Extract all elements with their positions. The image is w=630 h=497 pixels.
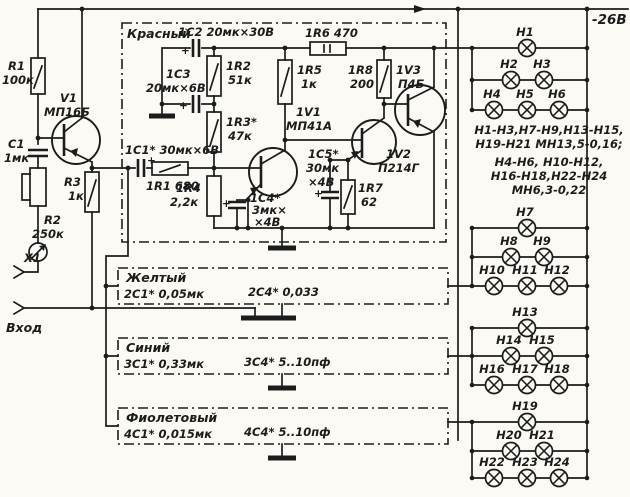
- violet-c4-label: 4C4* 5..10пф: [243, 425, 331, 439]
- lamp-label-Н8: Н8: [500, 234, 518, 248]
- connector-x1-name: X1: [23, 251, 41, 265]
- junction-dot: [585, 226, 590, 231]
- junction-dot: [585, 7, 590, 12]
- lamp-note-line5: МН6,3-0,22: [512, 183, 587, 197]
- junction-dot: [235, 226, 240, 231]
- lamp-label-Н2: Н2: [500, 57, 518, 71]
- polarity-plus: +: [314, 188, 323, 200]
- resistor-1r3-value: 47к: [227, 129, 253, 143]
- junction-dot: [585, 255, 590, 260]
- transistor-1v3-name: 1V3: [396, 63, 421, 77]
- capacitor-1c4: + 1C4* 3мк× ×4В: [222, 191, 287, 229]
- blue-c1-label: 3C1* 0,33мк: [124, 357, 205, 371]
- resistor-1r6-label: 1R6 470: [305, 26, 358, 40]
- transistor-v1-value: МП16Б: [44, 105, 90, 119]
- capacitor-1c3-value: 20мк×6В: [146, 81, 206, 95]
- input-label: Вход: [6, 320, 42, 335]
- potentiometer-r2-name: R2: [44, 213, 61, 227]
- resistor-1r4-value: 2,2к: [170, 195, 199, 209]
- violet-c1-label: 4C1* 0,015мк: [123, 427, 213, 441]
- lamp-note-line2: Н19-Н21 МН13,5-0,16;: [475, 137, 622, 151]
- yellow-c1-label: 2C1* 0,05мк: [124, 287, 205, 301]
- ground-symbol: [241, 308, 269, 318]
- junction-dot: [212, 102, 217, 107]
- junction-dot: [36, 136, 41, 141]
- lamp-label-Н18: Н18: [544, 362, 570, 376]
- junction-dot: [246, 198, 251, 203]
- junction-dot: [160, 102, 165, 107]
- junction-dot: [585, 78, 590, 83]
- lamp-label-Н3: Н3: [533, 57, 551, 71]
- ground-symbol: [268, 304, 296, 318]
- resistor-r3-value: 1к: [68, 189, 85, 203]
- capacitor-1c5-line2: 30мк: [306, 161, 340, 175]
- current-arrow-icon: [414, 5, 426, 13]
- lamp-label-Н23: Н23: [512, 455, 538, 469]
- capacitor-1c3: + 1C3 20мк×6В: [146, 67, 206, 113]
- junction-dot: [585, 449, 590, 454]
- resistor-1r8: 1R8 200: [348, 48, 391, 104]
- transistor-1v2-value: П214Г: [378, 161, 420, 175]
- lamp-feed-wires: [434, 48, 472, 422]
- resistor-r1: R1 100к: [2, 58, 45, 94]
- transistor-1v2-name: 1V2: [386, 147, 411, 161]
- red-channel-box: Красный + 1C2 20мк×30В + 1C3 20мк×6В 1R2…: [122, 23, 446, 248]
- connector-pin-icon: [14, 302, 24, 314]
- junction-dot: [585, 326, 590, 331]
- capacitor-1c5-line3: ×4В: [308, 175, 335, 189]
- resistor-1r8-name: 1R8: [348, 63, 373, 77]
- junction-dot: [212, 166, 217, 171]
- yellow-channel-box: Желтый 2C1* 0,05мк 2C4* 0,033: [118, 268, 448, 318]
- polarity-plus: +: [179, 100, 188, 112]
- junction-dot: [280, 226, 285, 231]
- lamp-label-Н9: Н9: [533, 234, 551, 248]
- junction-dot: [382, 46, 387, 51]
- capacitor-1c2-label: 1C2 20мк×30В: [178, 25, 274, 39]
- lamp-type-note: Н1-Н3,Н7-Н9,Н13-Н15, Н19-Н21 МН13,5-0,16…: [474, 123, 623, 197]
- lamp-label-Н6: Н6: [548, 87, 566, 101]
- junction-dot: [585, 420, 590, 425]
- potentiometer-r2-value: 250к: [32, 227, 65, 241]
- transistor-v1-name: V1: [60, 91, 77, 105]
- junction-dot: [212, 46, 217, 51]
- transistor-1v1-value: МП41А: [286, 119, 332, 133]
- resistor-1r6: 1R6 470: [305, 26, 358, 55]
- junction-dot: [470, 420, 475, 425]
- resistor-r1-name: R1: [8, 59, 25, 73]
- lamp-label-Н1: Н1: [516, 25, 534, 39]
- lamp-note-line4: Н16-Н18,Н22-Н24: [491, 169, 607, 183]
- junction-dot: [90, 306, 95, 311]
- lamp-label-Н10: Н10: [479, 263, 505, 277]
- junction-dot: [470, 284, 475, 289]
- junction-dot: [470, 383, 475, 388]
- junction-dot: [104, 354, 109, 359]
- junction-dot: [585, 476, 590, 481]
- blue-channel-title: Синий: [126, 340, 170, 355]
- junction-dot: [328, 226, 333, 231]
- yellow-channel-title: Желтый: [125, 270, 186, 285]
- junction-dot: [456, 7, 461, 12]
- resistor-1r5-name: 1R5: [297, 63, 322, 77]
- capacitor-c1-value: 1мк: [4, 151, 30, 165]
- potentiometer-r2: R2 250к: [22, 168, 65, 261]
- junction-dot: [346, 158, 351, 163]
- connector-pin-icon: [14, 266, 24, 278]
- supply-voltage-label: -26В: [592, 12, 627, 28]
- capacitor-c1-name: C1: [8, 137, 24, 151]
- resistor-1r7-value: 62: [361, 195, 377, 209]
- junction-dot: [470, 226, 475, 231]
- resistor-1r7-name: 1R7: [358, 181, 383, 195]
- lamp-label-Н4: Н4: [483, 87, 501, 101]
- junction-dot: [470, 46, 475, 51]
- lamp-label-Н21: Н21: [529, 428, 555, 442]
- junction-dot: [585, 108, 590, 113]
- resistor-1r1-label: 1R1 680: [146, 179, 199, 193]
- junction-dot: [90, 166, 95, 171]
- lamp-label-Н11: Н11: [512, 263, 538, 277]
- ground-symbol: [268, 444, 296, 458]
- junction-dot: [126, 166, 131, 171]
- lamp-label-Н14: Н14: [496, 333, 522, 347]
- junction-dot: [283, 138, 288, 143]
- ground-symbol: [268, 228, 296, 248]
- resistor-1r5: 1R5 1к: [278, 48, 322, 104]
- lamp-label-Н22: Н22: [479, 455, 505, 469]
- violet-channel-box: Фиолетовый 4C1* 0,015мк 4C4* 5..10пф: [118, 408, 448, 458]
- capacitor-1c1-label: 1C1* 30мк×6В: [125, 143, 219, 157]
- junction-dot: [328, 158, 333, 163]
- junction-dot: [382, 102, 387, 107]
- junction-dot: [470, 108, 475, 113]
- resistor-r1-value: 100к: [2, 73, 35, 87]
- capacitor-1c3-name: 1C3: [166, 67, 190, 81]
- junction-dot: [470, 354, 475, 359]
- junction-dot: [470, 255, 475, 260]
- transistor-1v1-name: 1V1: [296, 105, 321, 119]
- junction-dot: [346, 226, 351, 231]
- junction-dot: [246, 226, 251, 231]
- junction-dot: [470, 326, 475, 331]
- lamp-label-Н15: Н15: [529, 333, 555, 347]
- junction-dot: [283, 46, 288, 51]
- schematic-svg: -26В R1 100к V1 МП16Б C1 1мк: [0, 0, 630, 497]
- lamp-label-Н19: Н19: [512, 399, 538, 413]
- lamp-label-Н13: Н13: [512, 305, 538, 319]
- junction-dot: [470, 449, 475, 454]
- violet-channel-title: Фиолетовый: [126, 410, 217, 425]
- lamp-label-Н20: Н20: [496, 428, 522, 442]
- lamp-label-Н17: Н17: [512, 362, 538, 376]
- resistor-r3: R3 1к: [64, 172, 99, 212]
- junction-dot: [104, 284, 109, 289]
- ground-symbol: [268, 374, 296, 388]
- lamp-label-Н12: Н12: [544, 263, 570, 277]
- resistor-1r2-name: 1R2: [226, 59, 251, 73]
- junction-dot: [585, 354, 590, 359]
- blue-c4-label: 3C4* 5..10пф: [244, 355, 331, 369]
- polarity-plus: +: [222, 198, 231, 210]
- resistor-r3-name: R3: [64, 175, 81, 189]
- lamp-label-Н7: Н7: [516, 205, 534, 219]
- yellow-c4-label: 2C4* 0,033: [248, 285, 319, 299]
- transistor-1v3: 1V3 П4Б: [384, 48, 445, 228]
- capacitor-c1: C1 1мк: [4, 137, 48, 165]
- resistor-1r7: 1R7 62: [341, 160, 383, 228]
- lamp-network: Н1Н2Н3Н4Н5Н6Н7Н8Н9Н10Н11Н12Н13Н14Н15Н16Н…: [470, 25, 590, 487]
- lamp-label-Н24: Н24: [544, 455, 570, 469]
- transistor-1v3-value: П4Б: [398, 77, 425, 91]
- polarity-plus: +: [181, 45, 190, 57]
- transistor-v1: V1 МП16Б: [38, 9, 100, 172]
- capacitor-1c1: + 1C1* 30мк×6В: [125, 143, 219, 177]
- lamp-note-line1: Н1-Н3,Н7-Н9,Н13-Н15,: [474, 123, 623, 137]
- junction-dot: [585, 383, 590, 388]
- resistor-1r5-value: 1к: [301, 77, 318, 91]
- lamp-label-Н5: Н5: [516, 87, 534, 101]
- junction-dot: [585, 46, 590, 51]
- blue-channel-box: Синий 3C1* 0,33мк 3C4* 5..10пф: [118, 338, 448, 388]
- resistor-1r2: 1R2 51к: [207, 56, 253, 96]
- resistor-1r8-value: 200: [350, 77, 374, 91]
- schematic-scan: -26В R1 100к V1 МП16Б C1 1мк: [0, 0, 630, 497]
- junction-dot: [585, 284, 590, 289]
- capacitor-1c2: + 1C2 20мк×30В: [178, 25, 274, 57]
- capacitor-1c4-line3: ×4В: [254, 215, 281, 229]
- resistor-1r2-value: 51к: [228, 73, 253, 87]
- resistor-1r3-name: 1R3*: [226, 115, 257, 129]
- capacitor-1c5-line1: 1C5*: [308, 147, 338, 161]
- lamp-note-line3: Н4-Н6, Н10-Н12,: [495, 155, 604, 169]
- junction-dot: [470, 78, 475, 83]
- lamp-label-Н16: Н16: [479, 362, 505, 376]
- junction-dot: [470, 476, 475, 481]
